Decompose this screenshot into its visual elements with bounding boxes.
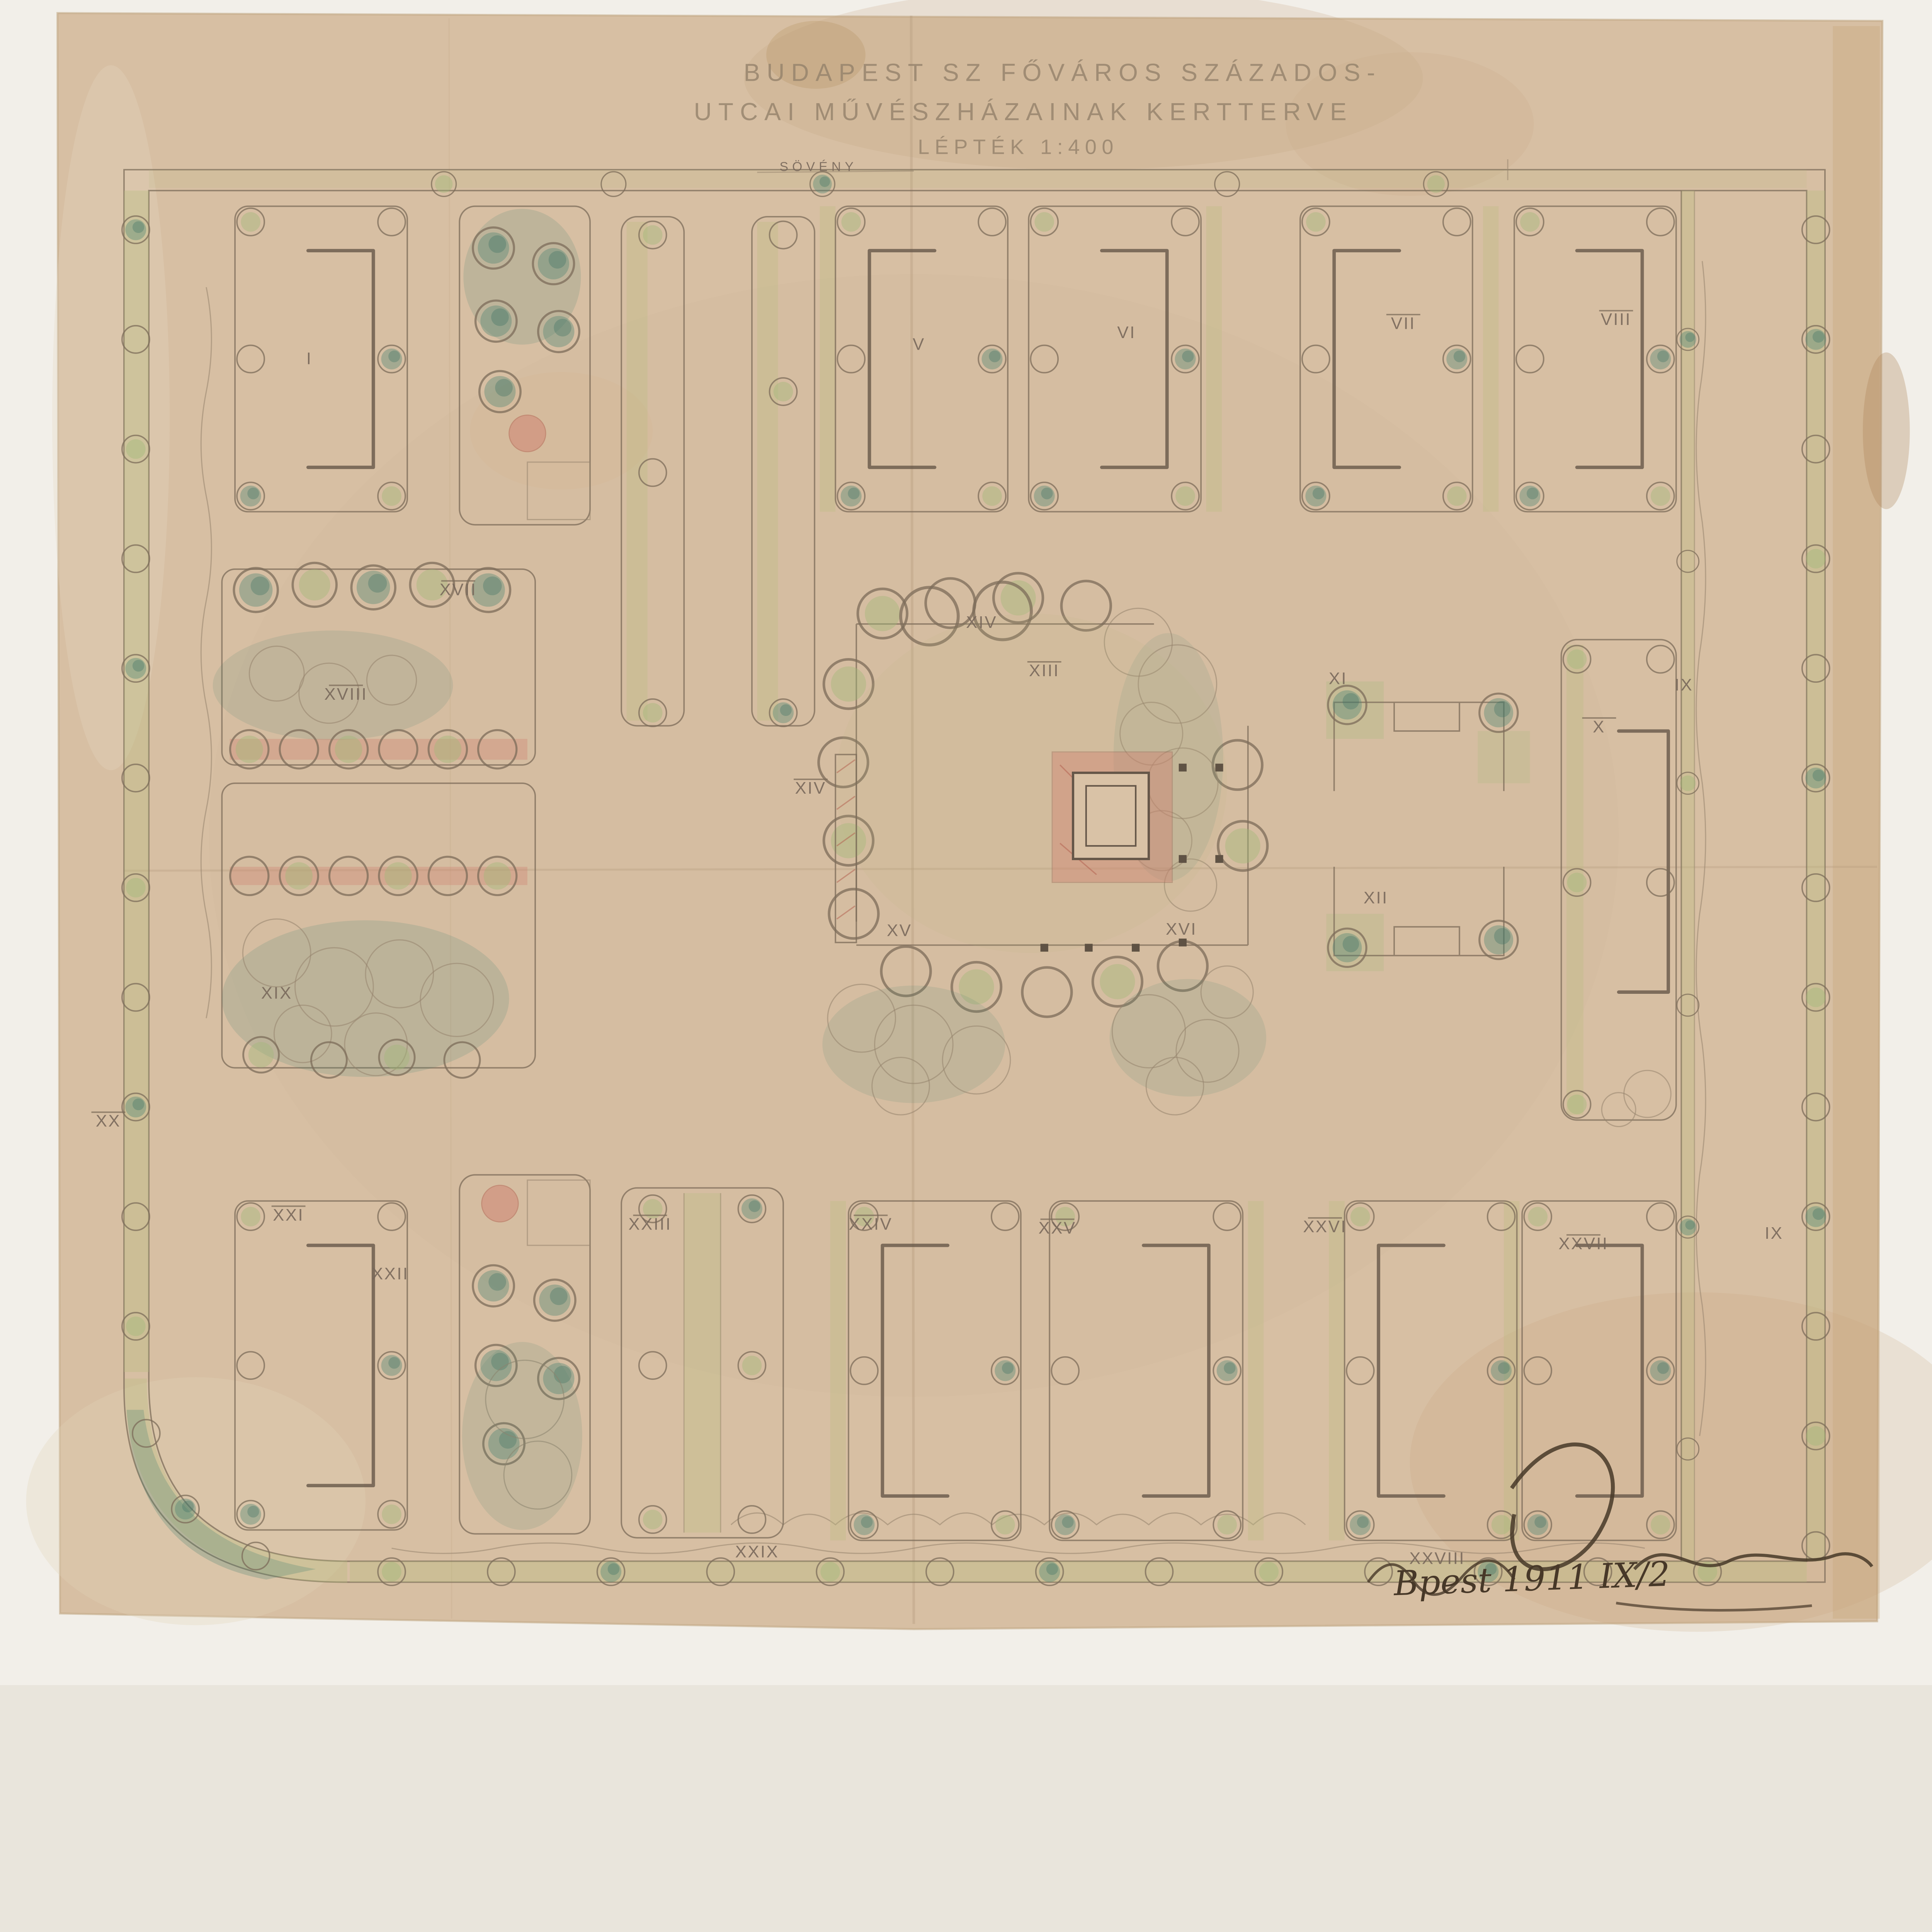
plot-label-XIX: XIX	[261, 983, 293, 1002]
plot-label-XIV: XIV	[966, 613, 997, 632]
tree-icon	[1677, 1216, 1699, 1238]
tree-icon	[1213, 1357, 1241, 1384]
plot-label-VII: VII	[1391, 314, 1416, 333]
tree-icon	[1677, 772, 1699, 794]
tree-icon	[432, 172, 456, 196]
tree-icon	[1647, 345, 1674, 373]
tree-icon	[1516, 208, 1544, 236]
plot-label-XXV: XXV	[1038, 1219, 1076, 1238]
tree-icon	[237, 1203, 264, 1230]
tree-icon	[1647, 1357, 1674, 1384]
tree-icon	[1031, 482, 1058, 510]
tree-icon	[1302, 482, 1330, 510]
tree-icon	[1802, 545, 1830, 572]
plot-label-V: V	[913, 335, 925, 354]
plot-label-X: X	[1593, 717, 1605, 736]
tree-icon	[992, 1511, 1019, 1538]
plot-label-XVII: XVII	[440, 580, 477, 599]
plot-label-XXI: XXI	[273, 1206, 304, 1225]
tree-icon	[1647, 482, 1674, 510]
plot-label-IX: IX	[1765, 1224, 1783, 1243]
tree-icon	[1647, 1511, 1674, 1538]
plot-label-XXVII: XXVII	[1558, 1234, 1608, 1253]
plot-label-XXIV: XXIV	[849, 1214, 893, 1233]
tree-icon	[1347, 1203, 1374, 1230]
fountain-pool	[1052, 752, 1172, 883]
garden-plan-drawing: BUDAPEST SZ FŐVÁROS SZÁZADOS- UTCAI MŰVÉ…	[0, 0, 1932, 1685]
plot-label-XIII: XIII	[1029, 661, 1060, 680]
tree-icon	[1443, 482, 1471, 510]
plot-label-VIII: VIII	[1601, 310, 1631, 329]
tree-icon	[1694, 1558, 1721, 1585]
tree-icon	[1051, 1511, 1079, 1538]
tree-icon	[1802, 1422, 1830, 1450]
tree-icon	[1347, 1511, 1374, 1538]
tree-icon	[597, 1558, 625, 1585]
title-line-3-scale: LÉPTÉK 1:400	[918, 136, 1119, 159]
plot-label-XXIX: XXIX	[735, 1542, 779, 1561]
tree-icon	[1802, 764, 1830, 792]
tree-icon	[378, 1352, 405, 1379]
tree-icon	[1524, 1203, 1551, 1230]
tree-icon	[978, 345, 1006, 373]
tree-icon	[810, 172, 835, 196]
tree-icon	[1172, 482, 1199, 510]
tree-icon	[1255, 1558, 1282, 1585]
tree-icon	[978, 482, 1006, 510]
tree-icon	[837, 482, 865, 510]
tree-icon	[1516, 482, 1544, 510]
tree-icon	[837, 208, 865, 236]
tree-icon	[122, 1313, 150, 1340]
tree-icon	[378, 1500, 405, 1528]
plot-label-XV: XV	[887, 921, 912, 940]
tree-icon	[850, 1511, 878, 1538]
plot-label-VI: VI	[1117, 323, 1136, 342]
tree-icon	[1031, 208, 1058, 236]
tree-icon	[992, 1357, 1019, 1384]
tree-icon	[816, 1558, 844, 1585]
tree-icon	[122, 435, 150, 463]
tree-icon	[122, 655, 150, 682]
tree-icon	[122, 1093, 150, 1121]
tree-icon	[1677, 328, 1699, 350]
plot-label-XVIII: XVIII	[324, 685, 367, 704]
tree-icon	[378, 345, 405, 373]
tree-icon	[122, 216, 150, 243]
tree-icon	[237, 482, 264, 510]
tree-icon	[237, 208, 264, 236]
plot-label-XXIII: XXIII	[628, 1214, 672, 1233]
plot-label-XI: XI	[1329, 669, 1347, 688]
plot-label-IX: IX	[1675, 675, 1693, 694]
plot-label-XVI: XVI	[1166, 920, 1197, 939]
plot-label-I: I	[306, 349, 313, 368]
plot-label-XXVI: XXVI	[1303, 1217, 1347, 1236]
title-line-2: UTCAI MŰVÉSZHÁZAINAK KERTTERVE	[694, 98, 1353, 126]
tree-icon	[378, 1558, 405, 1585]
tree-icon	[1443, 345, 1471, 373]
plot-label-XIV: XIV	[795, 779, 827, 798]
scanned-plan-sheet: BUDAPEST SZ FŐVÁROS SZÁZADOS- UTCAI MŰVÉ…	[0, 0, 1932, 1685]
tree-icon	[172, 1495, 199, 1523]
tree-icon	[1802, 1203, 1830, 1230]
plot-label-XXII: XXII	[372, 1264, 409, 1283]
tree-icon	[237, 1500, 264, 1528]
tree-icon	[1302, 208, 1330, 236]
red-flowerbed-circle	[509, 415, 546, 452]
tree-icon	[1802, 326, 1830, 353]
tree-icon	[1036, 1558, 1063, 1585]
tree-icon	[1423, 172, 1448, 196]
title-line-1: BUDAPEST SZ FŐVÁROS SZÁZADOS-	[743, 58, 1381, 86]
tree-icon	[1213, 1511, 1241, 1538]
tree-icon	[1488, 1357, 1515, 1384]
tree-icon	[1802, 984, 1830, 1011]
plot-label-XII: XII	[1364, 888, 1388, 907]
tree-icon	[122, 874, 150, 901]
red-flowerbed-circle	[482, 1185, 519, 1222]
plot-label-XX: XX	[96, 1112, 121, 1131]
tree-icon	[1524, 1511, 1551, 1538]
tree-icon	[1172, 345, 1199, 373]
tree-icon	[378, 482, 405, 510]
